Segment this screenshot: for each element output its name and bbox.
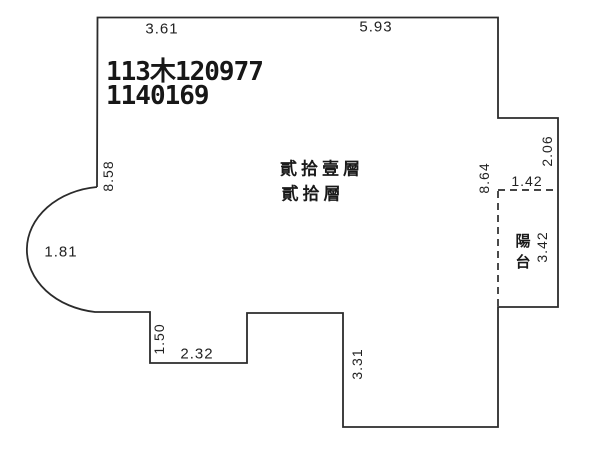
- case-number-block: 113木120977 1140169: [106, 60, 263, 108]
- dimension-lower-right-height: 3.31: [349, 348, 365, 379]
- case-number-line2: 1140169: [106, 84, 263, 108]
- dimension-top-right: 5.93: [359, 19, 392, 36]
- balcony-label: 陽台: [512, 233, 533, 275]
- dimension-notch-width: 2.32: [180, 346, 213, 363]
- dimension-right-inner-height: 8.64: [476, 162, 492, 193]
- floor-label-21f: 貳拾壹層: [280, 155, 364, 180]
- dimension-balcony-width: 1.42: [511, 173, 542, 189]
- dimension-notch-depth: 1.50: [151, 323, 167, 354]
- dimension-right-upper-height: 2.06: [539, 135, 555, 166]
- floor-label-20f: 貳拾層: [282, 180, 345, 205]
- floorplan-drawing: [0, 0, 600, 455]
- dimension-balcony-height: 3.42: [534, 231, 550, 262]
- floorplan-page: 113木120977 1140169 貳拾壹層 貳拾層 陽台 3.61 5.93…: [0, 0, 600, 455]
- dimension-top-left: 3.61: [145, 21, 178, 38]
- dimension-left-height: 8.58: [100, 160, 116, 191]
- dimension-bay-radius: 1.81: [44, 244, 77, 261]
